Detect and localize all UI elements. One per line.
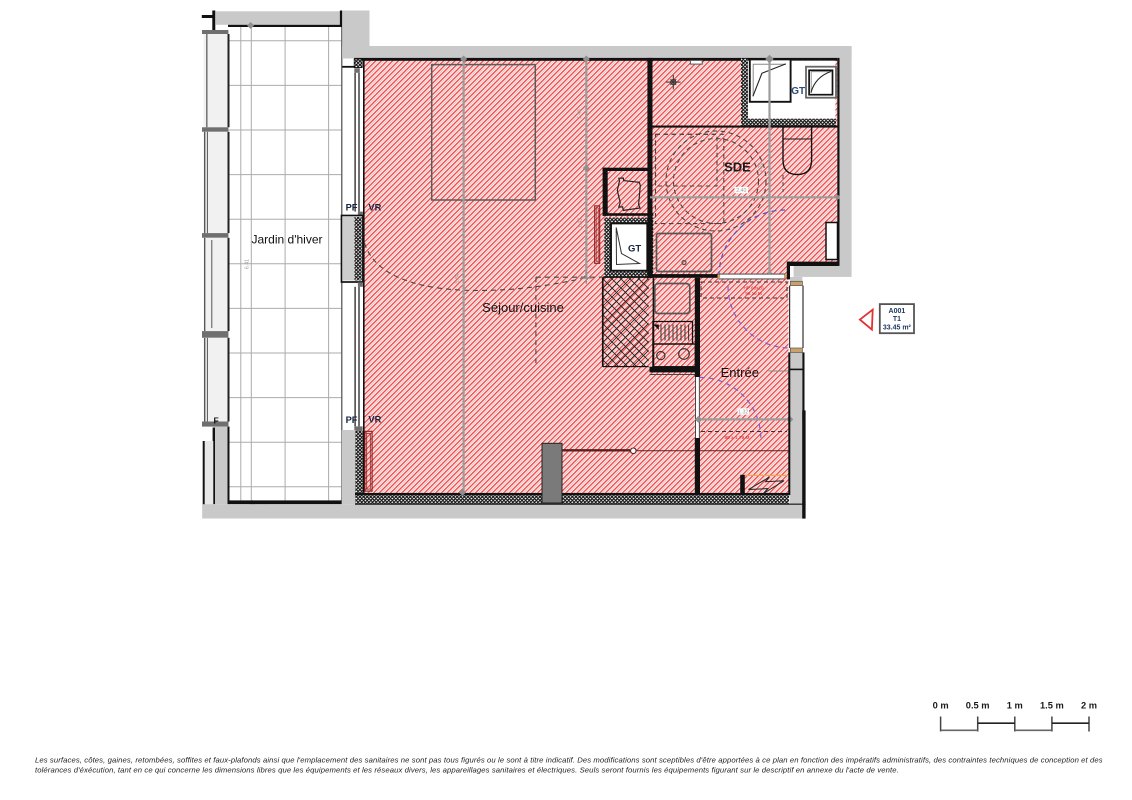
svg-text:96.16 M: 96.16 M [745, 291, 762, 296]
svg-text:PF: PF [346, 203, 358, 213]
svg-text:1 m: 1 m [1007, 700, 1023, 710]
svg-text:tolérances d'éxécution, tant e: tolérances d'éxécution, tant en ce qui c… [35, 766, 899, 775]
svg-text:GT: GT [791, 86, 805, 97]
svg-text:A001: A001 [889, 308, 906, 315]
svg-text:Jardin d'hiver: Jardin d'hiver [252, 233, 323, 247]
svg-text:Entrée: Entrée [721, 365, 759, 380]
svg-text:VR: VR [368, 203, 381, 213]
svg-text:6.41: 6.41 [245, 259, 251, 269]
svg-text:Séjour/cuisine: Séjour/cuisine [482, 300, 564, 315]
svg-text:0.5 m: 0.5 m [966, 700, 990, 710]
svg-text:PF: PF [346, 415, 358, 425]
svg-text:Les surfaces, côtes, gaines, r: Les surfaces, côtes, gaines, retombées, … [35, 756, 1103, 765]
svg-text:5.84: 5.84 [455, 273, 461, 283]
svg-text:GT: GT [628, 244, 641, 255]
svg-text:0 m: 0 m [933, 700, 949, 710]
svg-text:VR: VR [368, 415, 381, 425]
svg-text:HP 60x20: HP 60x20 [743, 285, 764, 290]
svg-text:2.28: 2.28 [758, 162, 764, 172]
svg-text:T1: T1 [893, 316, 901, 323]
svg-text:90 x 1.79 M: 90 x 1.79 M [724, 435, 749, 441]
svg-text:1.32: 1.32 [738, 409, 748, 415]
svg-text:F: F [214, 416, 219, 426]
svg-text:33.45 m²: 33.45 m² [883, 324, 912, 331]
svg-text:2 m: 2 m [1081, 700, 1097, 710]
svg-text:1.5 m: 1.5 m [1040, 700, 1064, 710]
svg-text:2.40: 2.40 [736, 188, 746, 194]
svg-text:1.46: 1.46 [577, 109, 583, 119]
svg-text:SDE: SDE [724, 159, 751, 174]
svg-text:1.42: 1.42 [578, 218, 584, 228]
